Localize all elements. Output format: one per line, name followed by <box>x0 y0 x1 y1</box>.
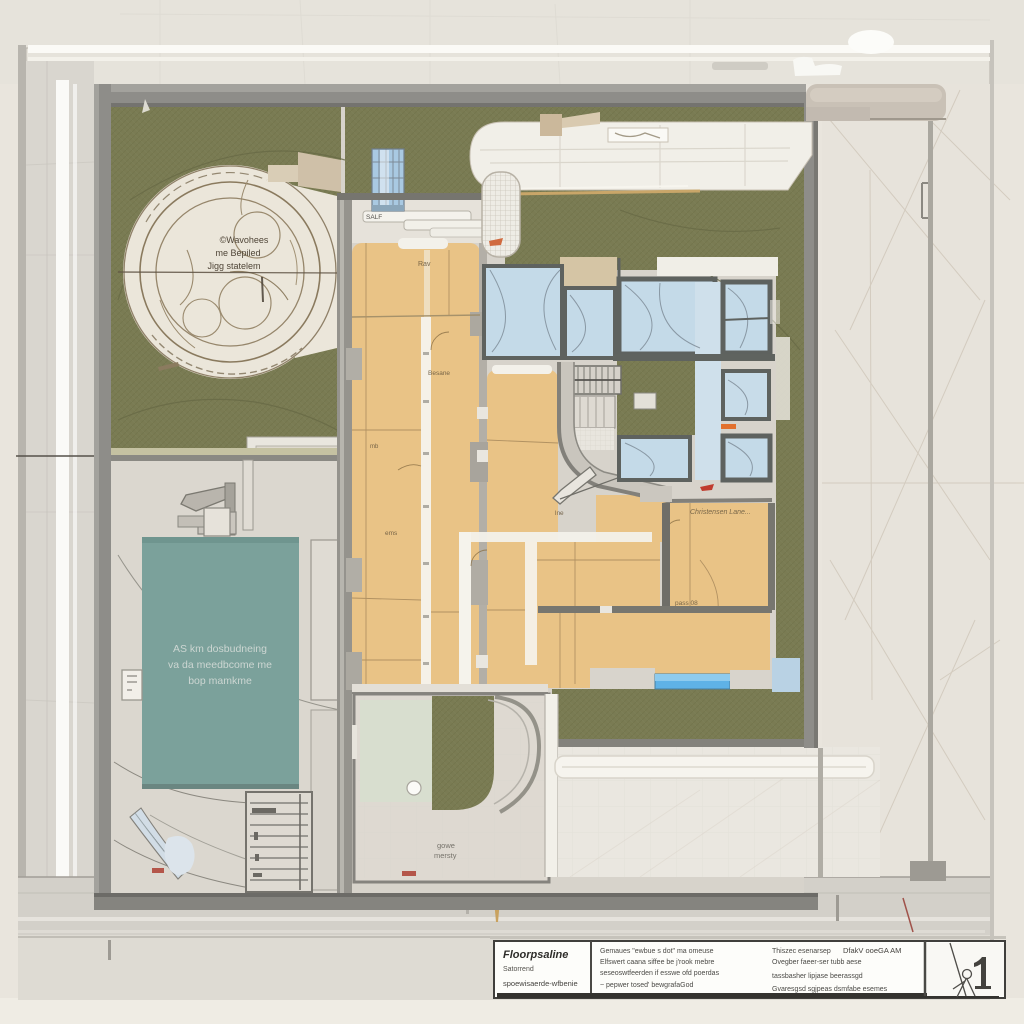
svg-text:Floorpsaline: Floorpsaline <box>503 949 568 961</box>
svg-text:gowe: gowe <box>437 841 455 850</box>
svg-text:Besane: Besane <box>428 370 450 377</box>
svg-text:Ovegber faeer-ser tubb aese: Ovegber faeer-ser tubb aese <box>772 959 862 966</box>
svg-text:pass 08: pass 08 <box>675 600 698 607</box>
svg-text:Thiszec esenarsep: Thiszec esenarsep <box>772 948 831 955</box>
svg-text:Christensen Lane...: Christensen Lane... <box>690 509 751 516</box>
svg-text:mersty: mersty <box>434 851 457 860</box>
svg-text:Gvaresgsd sgjpeas dsmfabe esem: Gvaresgsd sgjpeas dsmfabe esemes <box>772 986 888 993</box>
svg-text:bop mamkme: bop mamkme <box>188 675 252 687</box>
svg-text:tassbasher lipjase beerassgd: tassbasher lipjase beerassgd <box>772 973 863 980</box>
svg-text:Elfswert caana siffee be j'roo: Elfswert caana siffee be j'rook mebre <box>600 959 715 966</box>
svg-text:Gemaues "ewbue s dot" ma omeus: Gemaues "ewbue s dot" ma omeuse <box>600 948 714 955</box>
svg-text:Jigg statelem: Jigg statelem <box>207 261 260 271</box>
svg-text:ems: ems <box>385 530 398 537</box>
svg-text:spoewisaerde-wfbenie: spoewisaerde-wfbenie <box>503 979 578 988</box>
svg-text:mb: mb <box>370 444 379 450</box>
svg-text:Rav: Rav <box>418 261 431 268</box>
svg-text:©Wavohees: ©Wavohees <box>220 235 269 245</box>
svg-text:lne: lne <box>555 510 564 517</box>
svg-text:~ pepwer tosed' bewgrafaGod: ~ pepwer tosed' bewgrafaGod <box>600 982 693 989</box>
svg-text:DfakV ooeGA AM: DfakV ooeGA AM <box>843 946 901 955</box>
svg-text:seseoswtfeerden if esswe ofd p: seseoswtfeerden if esswe ofd poerdas <box>600 970 720 977</box>
svg-text:va da meedbcome me: va da meedbcome me <box>168 659 272 671</box>
svg-text:me Bepiled: me Bepiled <box>215 248 260 258</box>
svg-text:Satorrend: Satorrend <box>503 966 534 973</box>
svg-text:SALF: SALF <box>366 214 382 221</box>
svg-text:AS km dosbudneing: AS km dosbudneing <box>173 643 267 655</box>
